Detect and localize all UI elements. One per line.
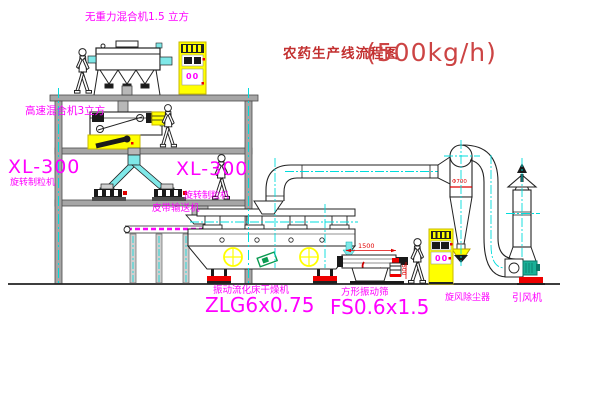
label-granulator-right-name: 旋转制粒机 [184,192,229,201]
dryer-legs [207,269,337,284]
label-granulator-left-name: 旋转制粒机 [10,179,55,188]
induced-draft-fan [505,259,545,285]
granulator-left [92,184,127,201]
label-granulator-left-model: XL-300 [8,158,80,177]
control-cabinet-1 [179,42,206,94]
cad-flow-diagram: 农药生产线流程图 (500kg/h) 无重力混合机1.5 立方 高速混合机3立方… [0,0,600,403]
dryer-exhaust-duct [254,165,438,214]
dim-sieve-height: 500 [400,264,406,275]
cabinet2-display: 00 [435,255,448,263]
diagram-capacity: (500kg/h) [366,40,497,65]
fluid-bed-dryer [188,204,358,284]
cabinet1-display: 00 [186,73,199,81]
label-draft-fan: 引风机 [512,294,542,304]
gravity-free-mixer [88,41,172,95]
person-ground [409,239,426,284]
label-belt-conveyor: 皮带输送机 [152,204,200,214]
label-gravity-mixer: 无重力混合机1.5 立方 [85,12,189,23]
label-granulator-right-model: XL-300 [176,160,248,179]
person-top-floor [75,49,92,94]
label-sieve-model: FS0.6x1.5 [330,297,429,317]
label-high-speed-mixer: 高速混合机3立方 [25,106,105,117]
label-dryer-model: ZLG6x0.75 [205,295,314,315]
dim-sieve-length: 1500 [358,243,375,250]
dim-cyclone-diameter: Φ700 [452,180,467,186]
label-cyclone: 旋风除尘器 [445,294,490,303]
fan-motor [523,261,537,275]
